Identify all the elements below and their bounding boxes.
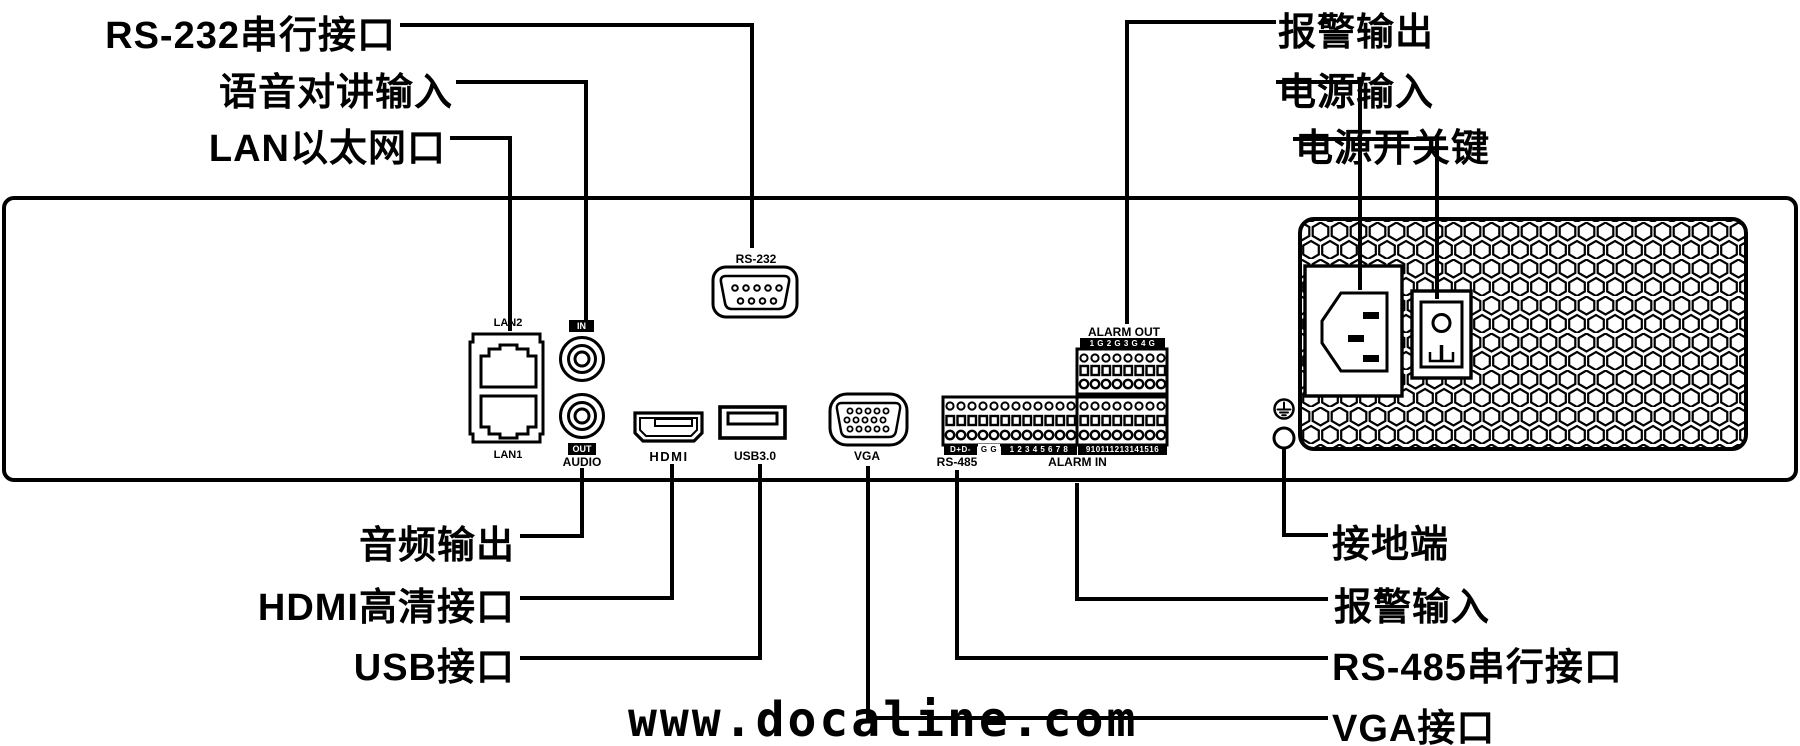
rear-panel-diagram: RS-232串行接口 语音对讲输入 LAN以太网口 报警输出 电源输入 电源开关… [0,0,1800,746]
callout-hdmi: HDMI高清接口 [210,576,515,631]
hdmi-connector [635,413,702,441]
hdmi-port-label: HDMI [640,449,698,464]
audio-port-label: AUDIO [558,455,606,469]
callout-rs485-serial: RS-485串行接口 [1332,636,1623,691]
rs485-port-label: RS-485 [928,455,986,469]
lan-rj45-ports [470,334,543,442]
rs232-port-label: RS-232 [726,252,786,266]
watermark: www.docaline.com [628,692,1138,746]
callout-audio-out: 音频输出 [230,514,515,569]
callout-alarm-out: 报警输出 [1278,1,1434,56]
callout-ground: 接地端 [1332,513,1449,568]
alarm-out-pin-numbers: 1 G 2 G 3 G 4 G [1080,338,1165,349]
audio-out-rca-jack [561,395,604,438]
callout-lan-ethernet: LAN以太网口 [160,117,446,172]
rs485-pin-numbers: D+D- [944,444,977,455]
alarm-out-port-label: ALARM OUT [1080,325,1168,339]
callout-audio-intercom-in: 语音对讲输入 [150,61,453,116]
alarm-out-terminal-block [1077,349,1167,394]
audio-out-tag: OUT [568,443,596,455]
audio-in-tag: IN [569,320,594,332]
lan1-port-label: LAN1 [478,449,538,461]
usb-port-label: USB3.0 [727,449,783,463]
alarm-in-pin-numbers-9-16: 910111213141516 [1078,444,1167,455]
rs232-db9-connector [713,267,797,317]
callout-rs232-serial: RS-232串行接口 [100,4,396,59]
alarm-in-terminal-block [1077,397,1167,445]
callout-power-switch: 电源开关键 [1295,117,1490,172]
power-switch [1412,291,1471,378]
audio-in-rca-jack [561,338,604,381]
vga-connector [830,394,907,445]
callout-alarm-in: 报警输入 [1334,576,1490,631]
power-inlet [1305,266,1402,396]
alarm-in-port-label: ALARM IN [1040,455,1115,469]
callout-usb: USB接口 [230,636,515,691]
usb-connector [720,407,785,438]
lan2-port-label: LAN2 [478,317,538,329]
vga-port-label: VGA [843,449,891,463]
alarm-in-pin-numbers-1-8: 1 2 3 4 5 6 7 8 [1001,444,1077,455]
callout-power-in: 电源输入 [1278,61,1434,116]
rs485-alarm-in-terminal-block [943,397,1077,445]
callout-vga: VGA接口 [1332,697,1495,746]
rs485-ground-pins: G G [978,444,1000,455]
